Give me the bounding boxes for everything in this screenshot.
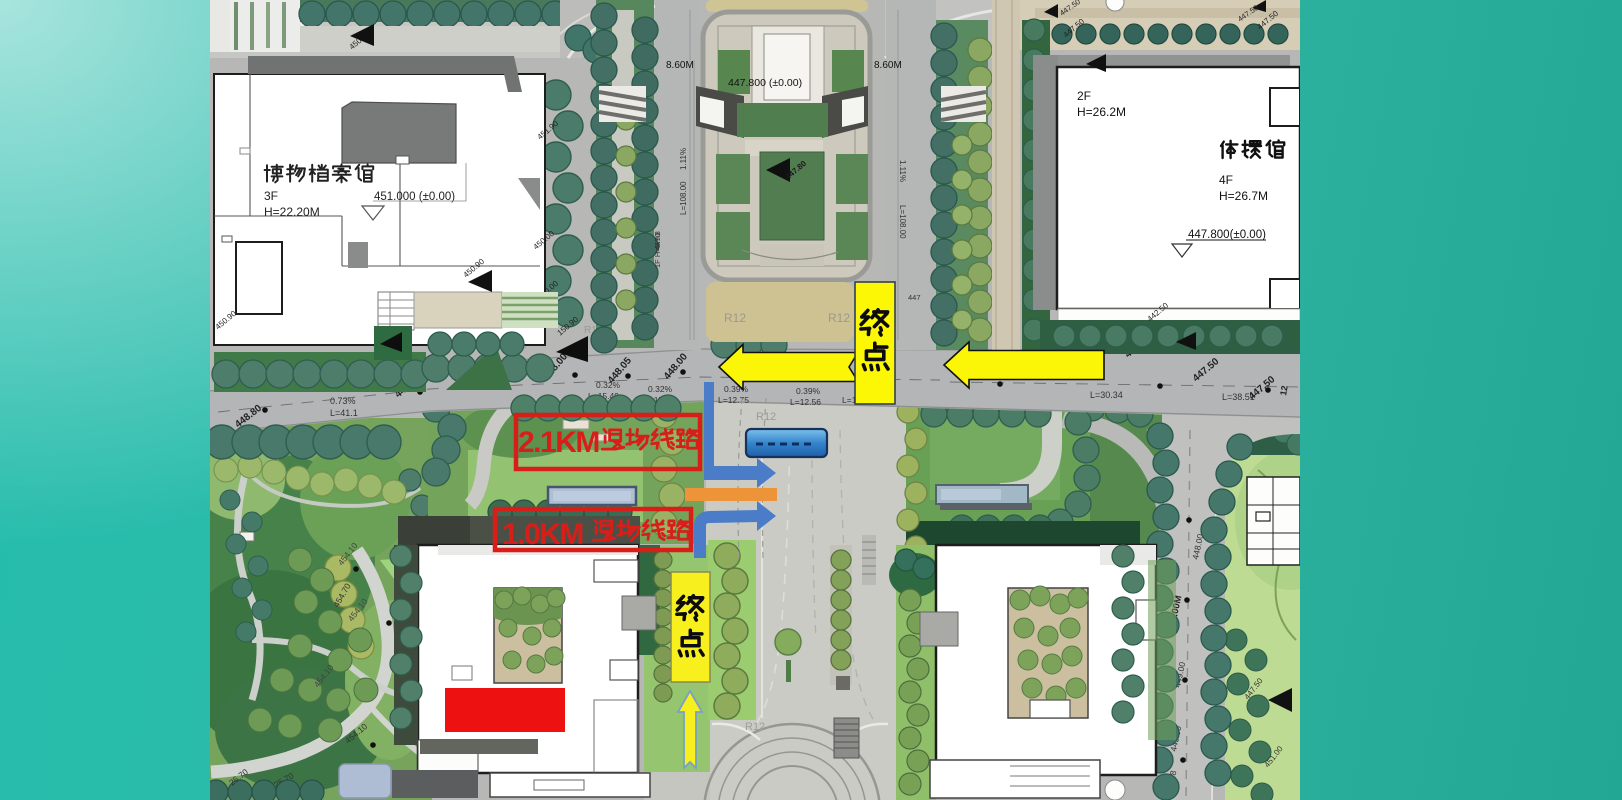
svg-text:L=30.34: L=30.34: [1090, 390, 1123, 400]
svg-text:3F: 3F: [264, 189, 278, 203]
svg-text:12: 12: [1278, 385, 1290, 397]
svg-text:L=108.00: L=108.00: [679, 181, 688, 215]
svg-text:R12: R12: [756, 411, 776, 423]
svg-text:2.1KM: 2.1KM: [518, 426, 599, 459]
svg-text:0.39%: 0.39%: [724, 384, 749, 394]
svg-text:L=12.75: L=12.75: [718, 395, 749, 405]
svg-text:4F: 4F: [1219, 173, 1233, 187]
svg-text:1F H=5.90: 1F H=5.90: [653, 233, 662, 268]
svg-text:L=41.1: L=41.1: [330, 408, 358, 418]
svg-text:0.73%: 0.73%: [330, 396, 356, 406]
svg-text:447.800 (±0.00): 447.800 (±0.00): [728, 77, 802, 89]
svg-text:0.32%: 0.32%: [648, 384, 673, 394]
svg-text:L=108.00: L=108.00: [898, 205, 907, 239]
svg-text:1.11%: 1.11%: [679, 148, 688, 170]
svg-text:L=12.56: L=12.56: [790, 397, 821, 407]
svg-text:H=26.7M: H=26.7M: [1219, 189, 1268, 203]
svg-text:0.39%: 0.39%: [796, 386, 821, 396]
svg-text:8.60M: 8.60M: [874, 60, 902, 71]
svg-text:2F: 2F: [1077, 89, 1091, 103]
svg-text:H=26.2M: H=26.2M: [1077, 105, 1126, 119]
svg-text:H=22.20M: H=22.20M: [264, 205, 320, 219]
svg-text:8.60M: 8.60M: [666, 60, 694, 71]
svg-text:R12: R12: [745, 721, 765, 733]
svg-text:1.11%: 1.11%: [898, 160, 907, 182]
svg-text:R12: R12: [828, 311, 850, 325]
svg-text:447.800(±0.00): 447.800(±0.00): [1188, 229, 1266, 241]
svg-text:1.0KM: 1.0KM: [502, 518, 583, 551]
svg-text:R12: R12: [724, 311, 746, 325]
svg-text:447: 447: [908, 293, 921, 302]
